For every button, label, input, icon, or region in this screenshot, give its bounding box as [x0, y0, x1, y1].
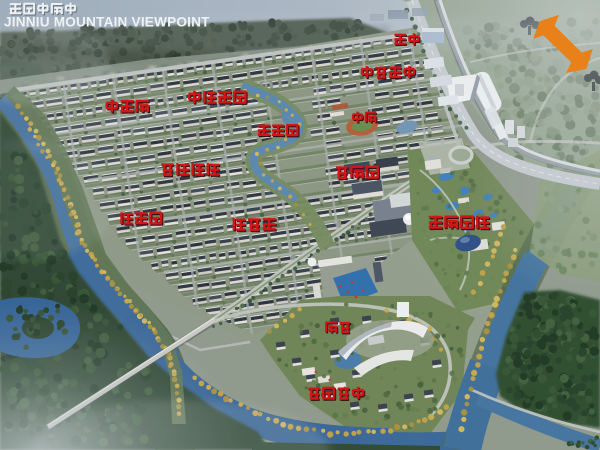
svg-text:JINNIU MOUNTAIN VIEWPOINT: JINNIU MOUNTAIN VIEWPOINT	[4, 15, 210, 30]
